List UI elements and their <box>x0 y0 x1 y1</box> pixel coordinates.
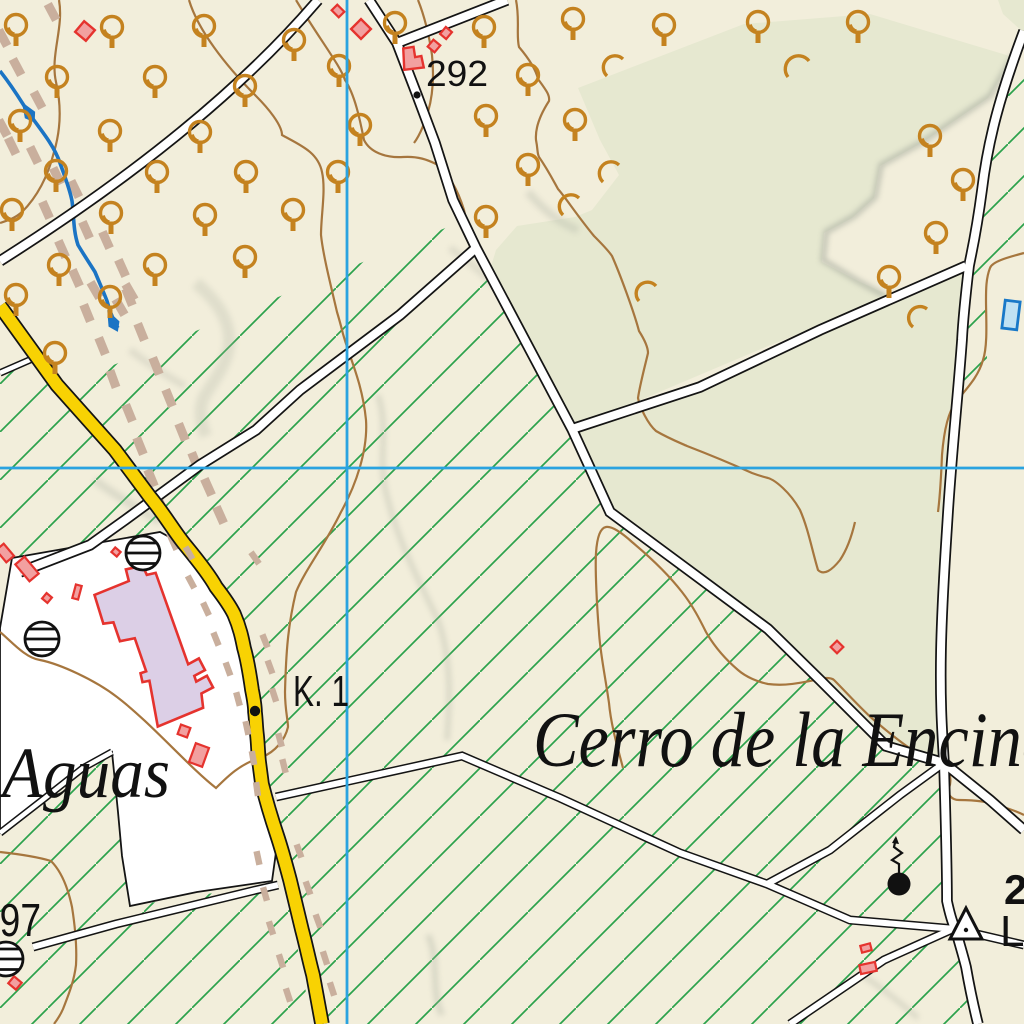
svg-text:297: 297 <box>0 894 41 946</box>
svg-text:292: 292 <box>426 53 488 94</box>
svg-text:L: L <box>1000 907 1024 956</box>
svg-text:K. 1: K. 1 <box>293 667 349 716</box>
svg-text:Cerro de la Encina: Cerro de la Encina <box>533 696 1024 783</box>
svg-text:2: 2 <box>1004 866 1024 913</box>
svg-text:Aguas: Aguas <box>0 733 170 813</box>
